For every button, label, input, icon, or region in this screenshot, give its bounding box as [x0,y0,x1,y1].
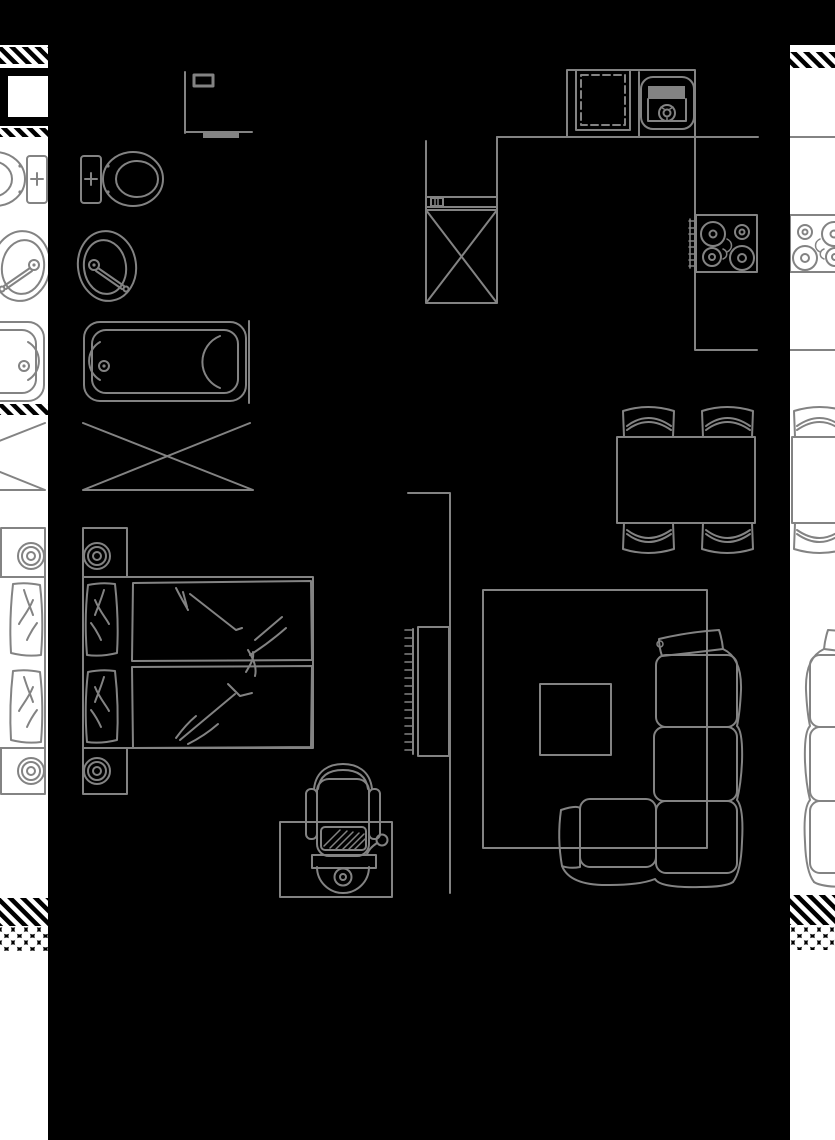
adjacent-unit-right [789,45,835,1140]
plan-background [0,0,835,1140]
wall-hatch-band [0,898,48,926]
insulation-pebble-band [0,926,48,951]
adjacent-unit-left [0,45,55,1140]
wall-hatch-band [0,404,48,415]
wall-hatch-band [790,895,835,925]
insulation-pebble-band [790,925,835,950]
wall-hatch-band [790,52,835,68]
door-opening-box [0,68,48,126]
floorplan-canvas [0,0,835,1140]
floorplan-svg [0,0,835,1140]
wall-hatch-band [0,128,48,137]
wall-hatch-band [0,47,48,64]
